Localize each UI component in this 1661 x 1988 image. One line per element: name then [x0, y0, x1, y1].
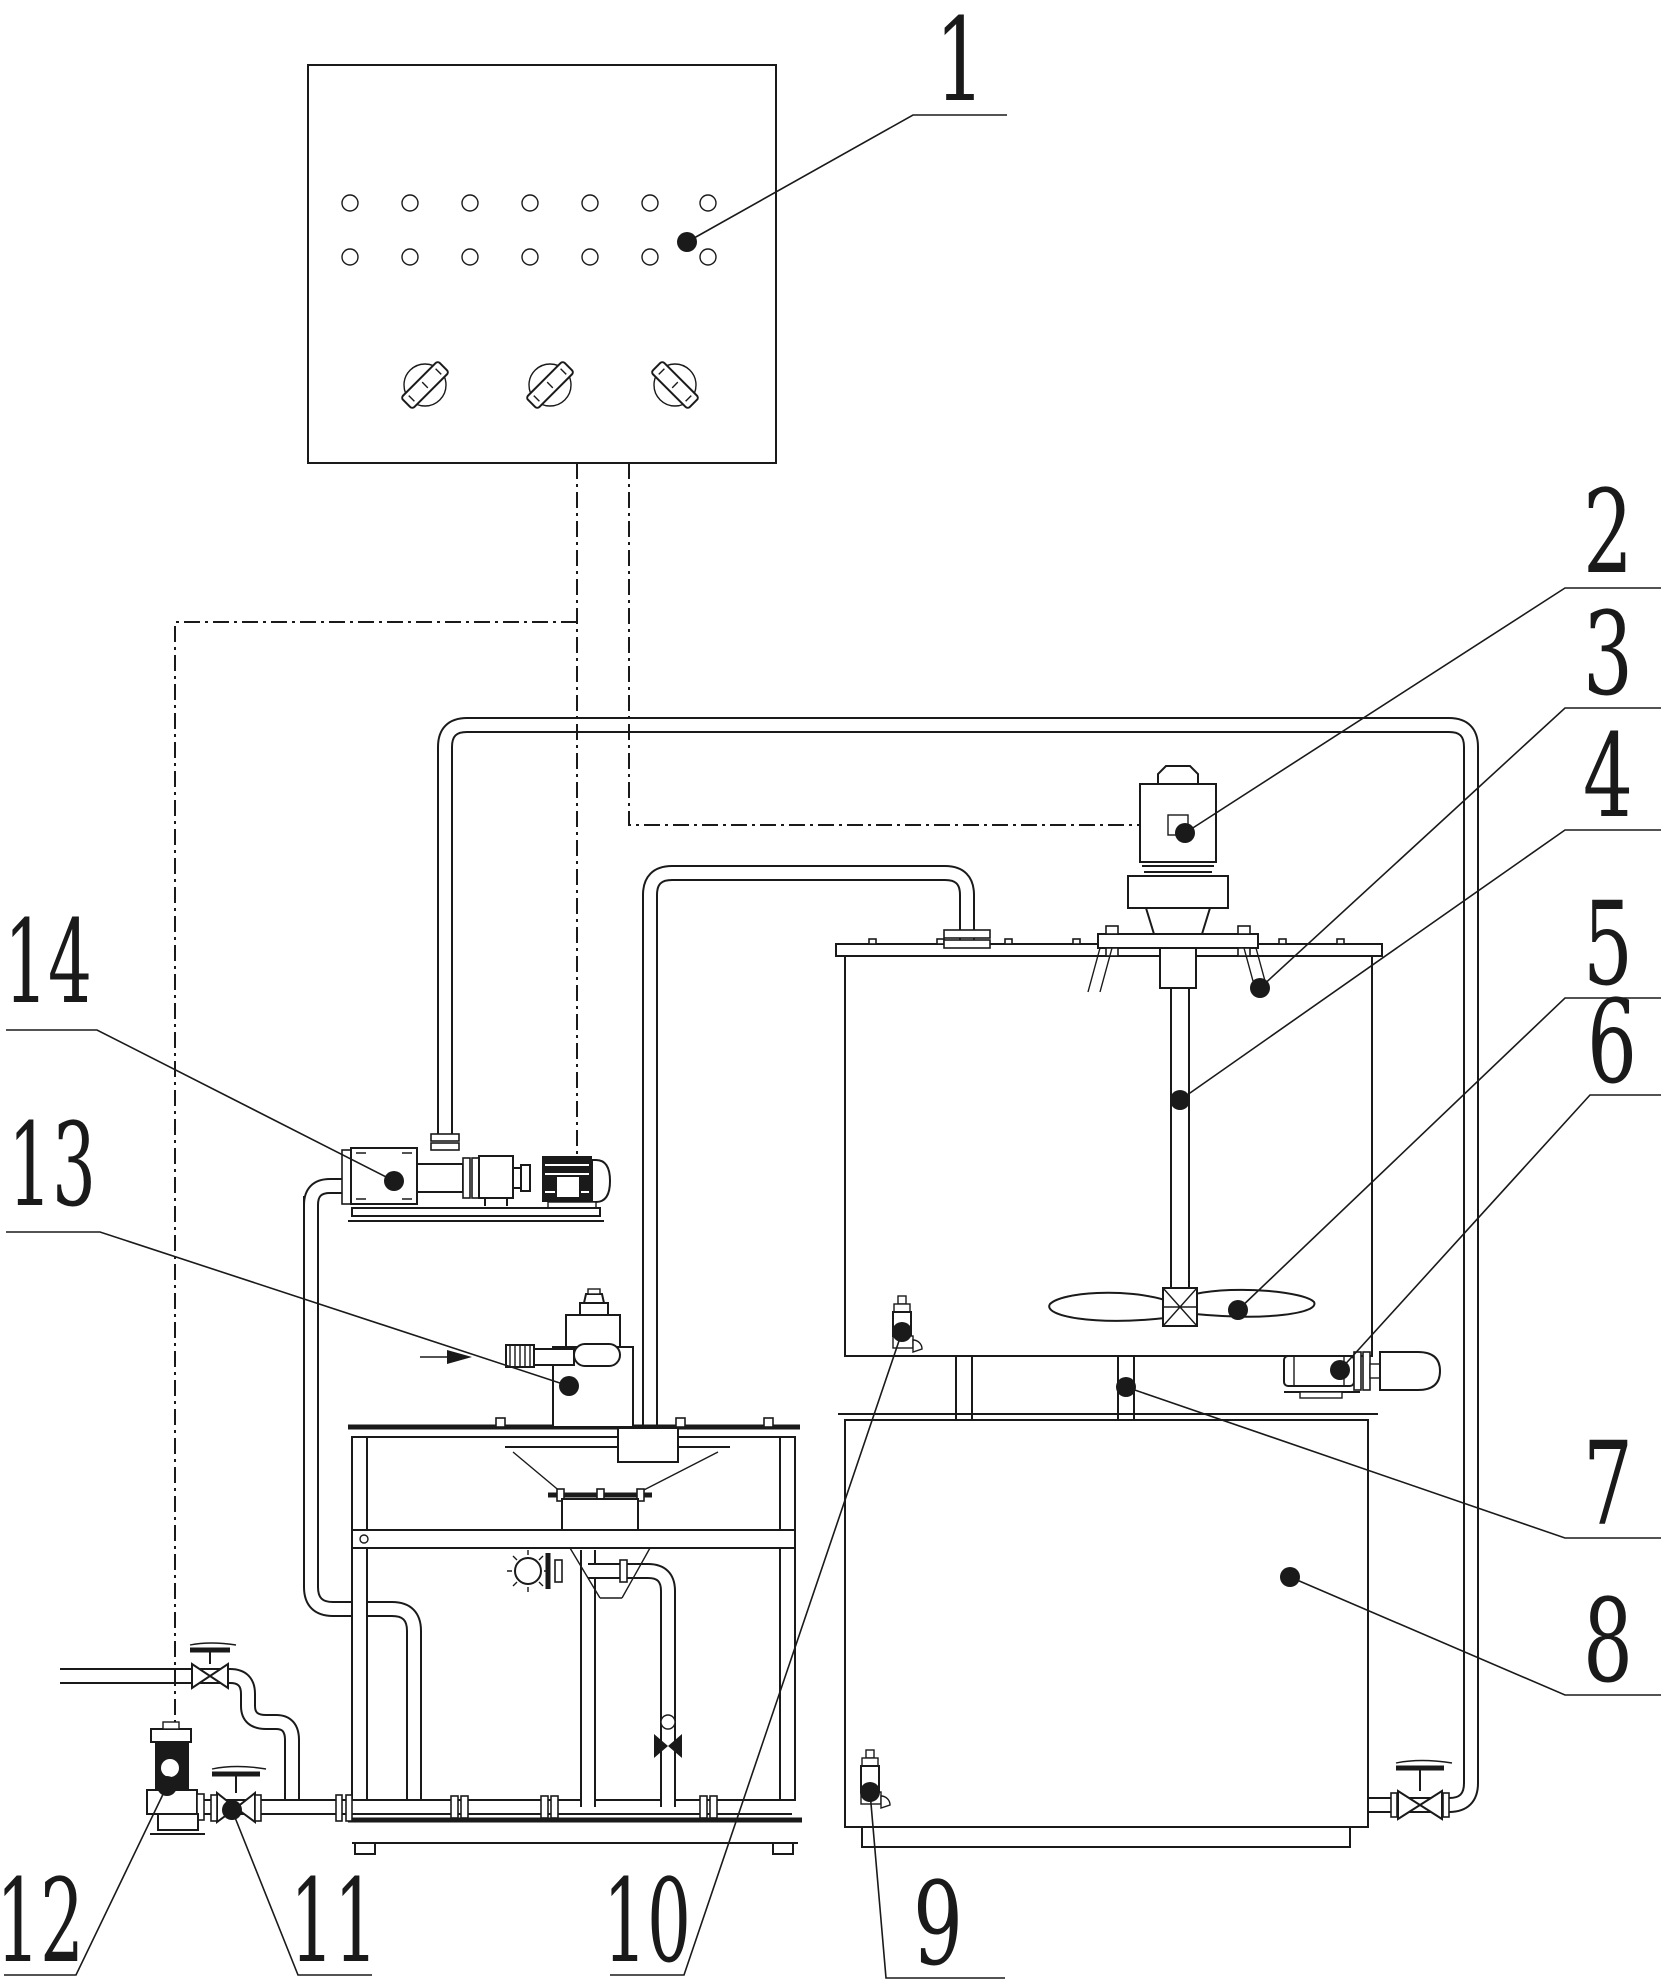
callout-7-number: 7	[1583, 1418, 1633, 1552]
callout-8-number: 8	[1583, 1575, 1633, 1709]
eductor-branch-pipe	[588, 1571, 668, 1807]
tank-stand-leg-left	[956, 1356, 972, 1420]
callout-12-number: 12	[0, 1855, 84, 1988]
callout-13-leader	[6, 1232, 569, 1386]
callout-4-number: 4	[1583, 710, 1633, 844]
agitator-shaft	[1171, 988, 1189, 1290]
powder-feeder	[420, 1289, 633, 1427]
callout-4-dot	[1170, 1090, 1190, 1110]
frame-post-left	[352, 1437, 367, 1800]
frame-post-right	[780, 1437, 795, 1800]
callout-9-dot	[860, 1782, 880, 1802]
dosing-system-drawing: 1234567891011121314	[0, 0, 1661, 1988]
storage-tank-plinth	[862, 1827, 1350, 1847]
callout-9-number: 9	[913, 1858, 963, 1988]
storage-tank	[838, 1414, 1378, 1847]
callout-2-number: 2	[1583, 466, 1633, 600]
patent-diagram: 1234567891011121314	[0, 0, 1661, 1988]
callout-6-number: 6	[1587, 976, 1637, 1110]
gearbox	[1128, 876, 1228, 908]
shaft-housing	[1160, 948, 1196, 988]
callout-10-dot	[892, 1322, 912, 1342]
callout-13-dot	[559, 1376, 579, 1396]
screw-pump	[311, 1134, 610, 1221]
callout-6-dot	[1330, 1360, 1350, 1380]
callout-11-dot	[222, 1800, 242, 1820]
callout-1-dot	[677, 232, 697, 252]
callout-3-number: 3	[1583, 588, 1633, 722]
callout-11-number: 11	[290, 1855, 378, 1988]
callout-1-number: 1	[935, 0, 985, 128]
callout-10-number: 10	[603, 1855, 691, 1988]
callout-8-dot	[1280, 1567, 1300, 1587]
frame-mid-rail	[352, 1530, 795, 1548]
callout-14-number: 14	[4, 896, 92, 1030]
dosing-pump	[147, 1722, 205, 1834]
tank-inlet-flange	[944, 930, 990, 938]
callout-2-dot	[1175, 823, 1195, 843]
motor-cap	[1158, 766, 1198, 784]
feeder-discharge-box	[618, 1428, 678, 1462]
callout-13-number: 13	[8, 1099, 96, 1233]
callout-5-dot	[1228, 1300, 1248, 1320]
callout-7-dot	[1116, 1377, 1136, 1397]
control-panel	[308, 65, 776, 463]
hopper-chute	[562, 1499, 638, 1530]
gearbox-cone	[1146, 908, 1210, 934]
wire-to-agitator-motor	[629, 463, 1140, 825]
pump-baseplate	[352, 1208, 600, 1216]
callout-14-dot	[384, 1171, 404, 1191]
callout-3-dot	[1250, 978, 1270, 998]
mount-plate	[1098, 934, 1258, 948]
transfer-pump	[1284, 1352, 1440, 1398]
pump-6-motor	[1380, 1352, 1440, 1390]
callout-12-dot	[157, 1776, 177, 1796]
eductor-branch-pipe	[588, 1571, 668, 1807]
screw-pump-motor	[542, 1156, 610, 1208]
callout-6-leader	[1340, 1095, 1661, 1370]
pressure-gauge	[507, 1550, 549, 1592]
storage-tank-body	[845, 1420, 1368, 1827]
